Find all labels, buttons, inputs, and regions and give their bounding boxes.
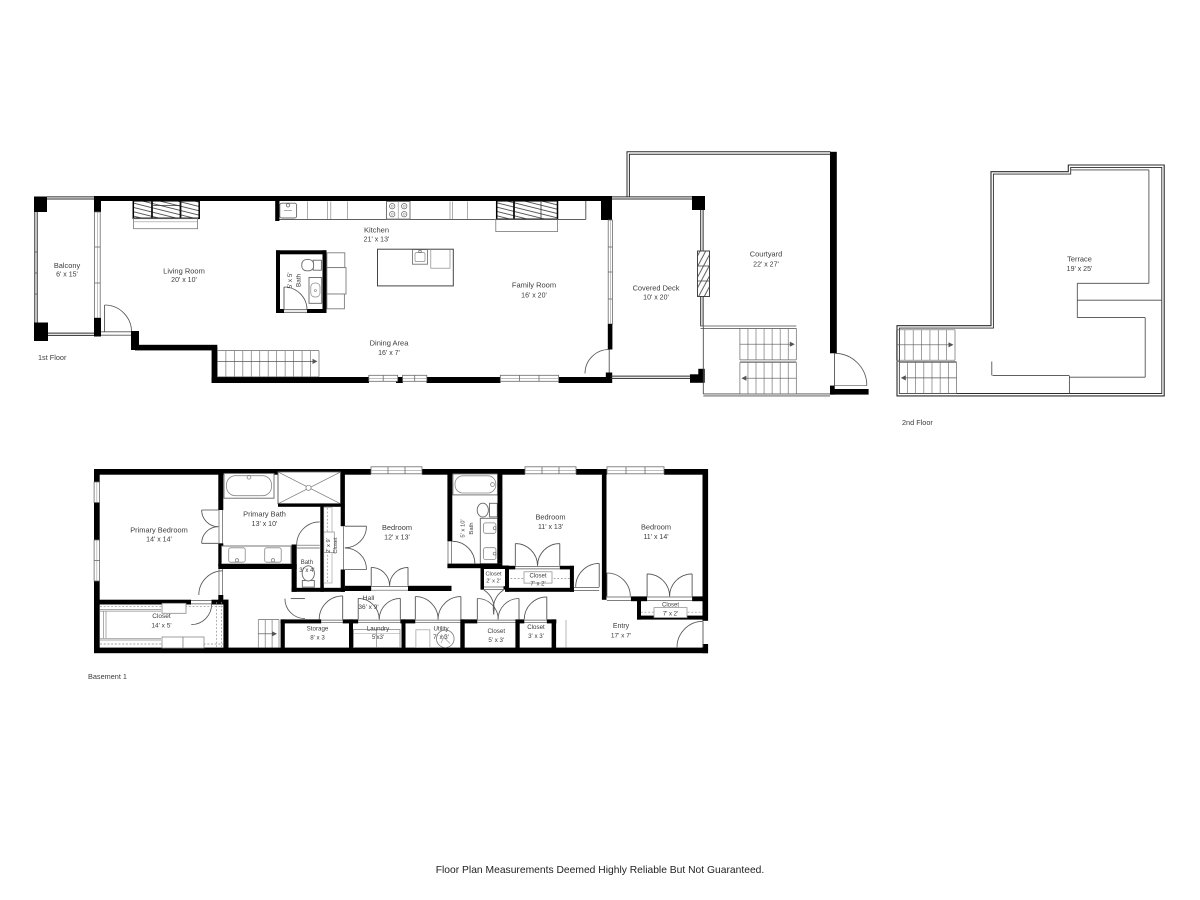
svg-text:Bedroom: Bedroom bbox=[382, 523, 412, 532]
svg-text:11' x 14': 11' x 14' bbox=[643, 534, 668, 541]
svg-text:Closet: Closet bbox=[485, 571, 502, 577]
svg-text:Floor Plan Measurements Deemed: Floor Plan Measurements Deemed Highly Re… bbox=[436, 865, 765, 876]
svg-text:13' x 10': 13' x 10' bbox=[252, 521, 278, 528]
svg-text:Primary Bath: Primary Bath bbox=[243, 510, 286, 519]
svg-text:5'x3': 5'x3' bbox=[372, 634, 384, 641]
svg-text:7' x 2': 7' x 2' bbox=[530, 581, 545, 587]
svg-text:5' x 10': 5' x 10' bbox=[461, 519, 467, 537]
svg-text:Bath: Bath bbox=[301, 560, 313, 566]
svg-text:Closet: Closet bbox=[333, 537, 339, 554]
svg-text:2' x 9': 2' x 9' bbox=[326, 538, 332, 553]
svg-text:Closet: Closet bbox=[152, 613, 171, 620]
svg-text:Closet: Closet bbox=[529, 574, 546, 580]
svg-text:7' x 3': 7' x 3' bbox=[433, 634, 449, 641]
svg-text:1st Floor: 1st Floor bbox=[38, 353, 67, 362]
svg-text:Basement 1: Basement 1 bbox=[88, 672, 127, 681]
svg-text:Closet: Closet bbox=[488, 628, 506, 635]
svg-text:2nd Floor: 2nd Floor bbox=[902, 418, 933, 427]
svg-text:Balcony: Balcony bbox=[54, 261, 81, 270]
svg-text:19' x 25': 19' x 25' bbox=[1067, 266, 1093, 273]
svg-text:17' x 7': 17' x 7' bbox=[611, 633, 631, 640]
svg-text:12' x 13': 12' x 13' bbox=[384, 535, 410, 542]
svg-text:14' x 14': 14' x 14' bbox=[146, 537, 172, 544]
svg-text:6' x 15': 6' x 15' bbox=[56, 272, 78, 279]
svg-text:21' x 13': 21' x 13' bbox=[364, 237, 390, 244]
svg-text:16' x 7': 16' x 7' bbox=[378, 350, 400, 357]
svg-text:Closet: Closet bbox=[662, 603, 679, 609]
svg-text:3' x 4': 3' x 4' bbox=[299, 568, 314, 574]
svg-text:Bath: Bath bbox=[296, 274, 303, 287]
svg-text:7' x 2': 7' x 2' bbox=[663, 611, 678, 617]
svg-text:Entry: Entry bbox=[613, 623, 630, 630]
svg-text:20' x 10': 20' x 10' bbox=[171, 277, 197, 284]
svg-text:Bath: Bath bbox=[469, 522, 475, 534]
svg-text:Utility: Utility bbox=[433, 625, 449, 632]
svg-text:Closet: Closet bbox=[527, 624, 545, 631]
svg-text:Bedroom: Bedroom bbox=[641, 523, 671, 532]
svg-text:Bedroom: Bedroom bbox=[536, 513, 566, 522]
svg-text:Terrace: Terrace bbox=[1067, 255, 1092, 264]
svg-text:Living Room: Living Room bbox=[163, 266, 205, 275]
svg-text:14' x 5': 14' x 5' bbox=[151, 622, 171, 629]
svg-text:Primary Bedroom: Primary Bedroom bbox=[130, 526, 188, 535]
svg-text:10' x 20': 10' x 20' bbox=[643, 295, 669, 302]
svg-text:Storage: Storage bbox=[307, 625, 329, 632]
svg-text:Family Room: Family Room bbox=[512, 281, 556, 290]
svg-text:Kitchen: Kitchen bbox=[364, 226, 389, 235]
svg-text:Covered Deck: Covered Deck bbox=[633, 283, 680, 292]
svg-text:Dining Area: Dining Area bbox=[370, 339, 410, 348]
svg-text:Laundry: Laundry bbox=[367, 625, 390, 632]
svg-text:11' x 13': 11' x 13' bbox=[538, 524, 563, 531]
svg-text:5' x 5': 5' x 5' bbox=[287, 272, 294, 288]
svg-text:16' x 20': 16' x 20' bbox=[521, 293, 547, 300]
svg-text:Courtyard: Courtyard bbox=[750, 250, 782, 259]
svg-text:2' x 2': 2' x 2' bbox=[486, 579, 501, 585]
svg-text:8' x 3: 8' x 3 bbox=[310, 634, 325, 641]
svg-text:3' x 3': 3' x 3' bbox=[528, 633, 544, 640]
svg-text:5' x 3': 5' x 3' bbox=[488, 637, 504, 644]
svg-text:22' x 27': 22' x 27' bbox=[753, 261, 779, 268]
